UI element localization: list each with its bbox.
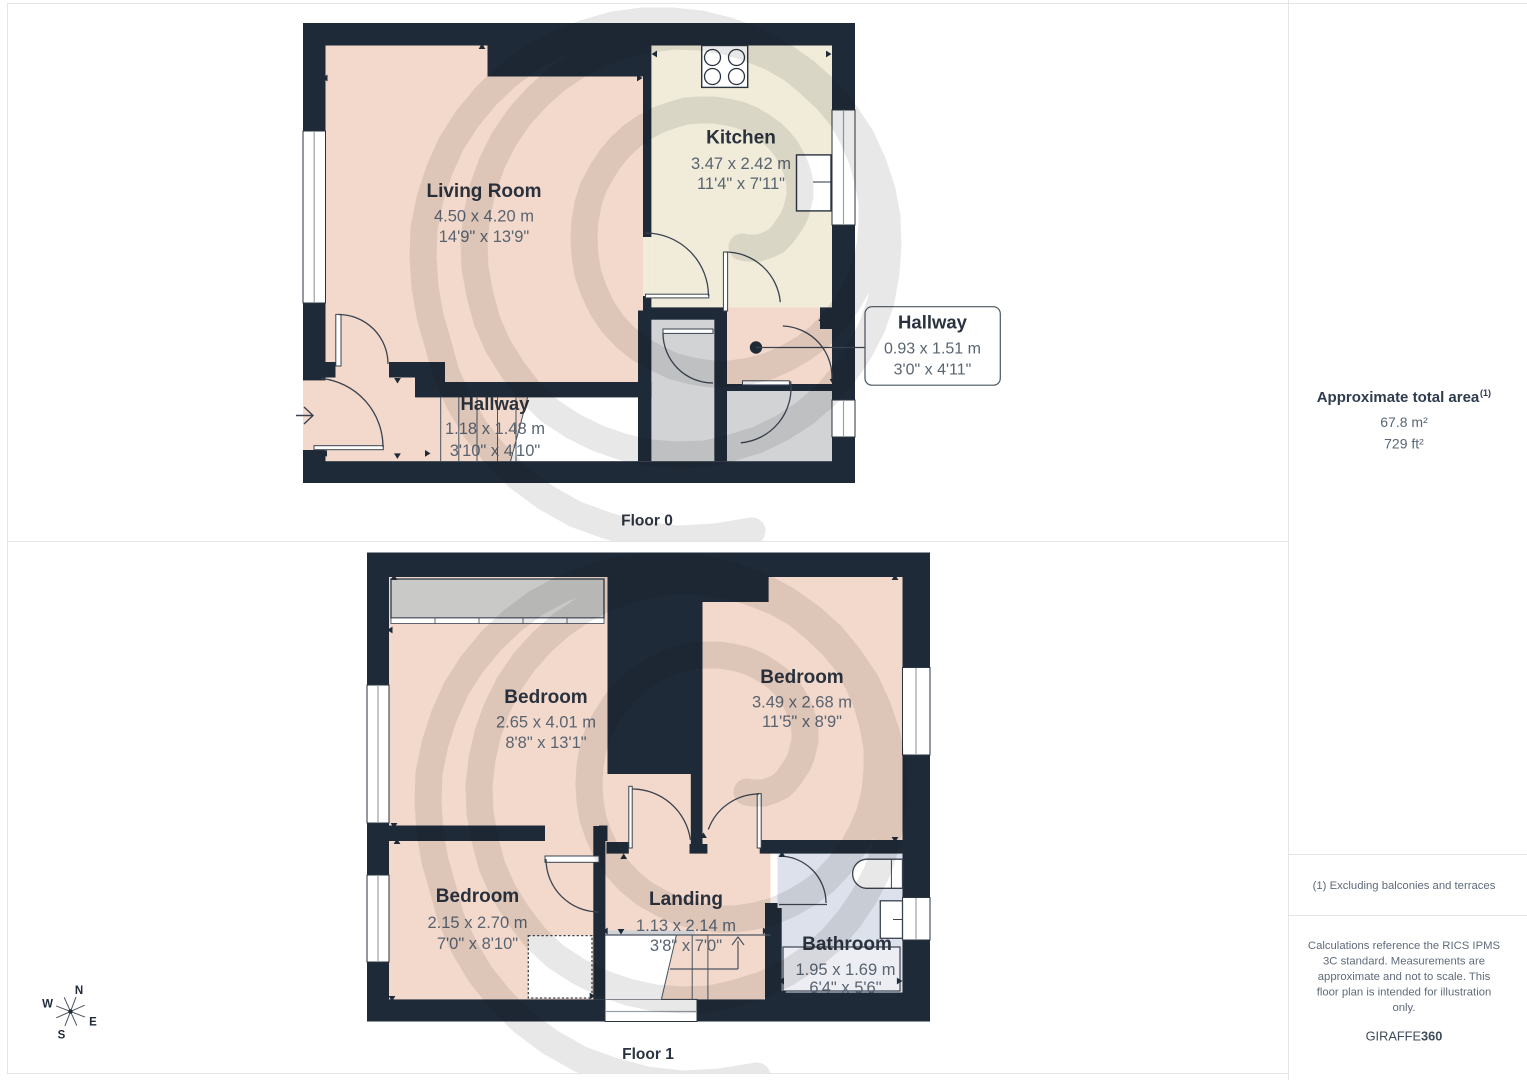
svg-text:0.93 x 1.51 m: 0.93 x 1.51 m — [884, 341, 981, 358]
svg-text:729 ft²: 729 ft² — [1384, 436, 1424, 452]
svg-text:(1) Excluding balconies and te: (1) Excluding balconies and terraces — [1313, 880, 1496, 892]
svg-text:N: N — [75, 985, 83, 997]
svg-text:(1): (1) — [1480, 388, 1491, 398]
svg-text:3'0" x 4'11": 3'0" x 4'11" — [894, 362, 972, 379]
svg-text:W: W — [42, 999, 53, 1011]
svg-text:approximate and not to scale.: approximate and not to scale. This — [1318, 971, 1491, 983]
svg-text:6'4" x 5'6": 6'4" x 5'6" — [809, 979, 881, 997]
svg-text:only.: only. — [1392, 1002, 1415, 1014]
svg-text:3C standard. Measurements are: 3C standard. Measurements are — [1323, 956, 1485, 968]
svg-text:3'8" x 7'0": 3'8" x 7'0" — [650, 937, 722, 955]
svg-text:Approximate total area: Approximate total area — [1317, 389, 1480, 406]
svg-text:S: S — [58, 1030, 66, 1042]
svg-text:GIRAFFE360: GIRAFFE360 — [1366, 1029, 1443, 1044]
svg-text:floor plan is intended for ill: floor plan is intended for illustration — [1317, 987, 1492, 999]
svg-text:Calculations reference the RIC: Calculations reference the RICS IPMS — [1308, 940, 1501, 952]
svg-text:E: E — [89, 1017, 97, 1029]
svg-text:Hallway: Hallway — [898, 312, 968, 333]
svg-text:8'8" x 13'1": 8'8" x 13'1" — [505, 734, 586, 752]
svg-text:11'4" x 7'11": 11'4" x 7'11" — [697, 175, 785, 193]
svg-text:Floor 1: Floor 1 — [622, 1046, 674, 1063]
svg-text:2.65 x 4.01 m: 2.65 x 4.01 m — [496, 714, 596, 732]
svg-text:67.8 m²: 67.8 m² — [1380, 414, 1428, 430]
